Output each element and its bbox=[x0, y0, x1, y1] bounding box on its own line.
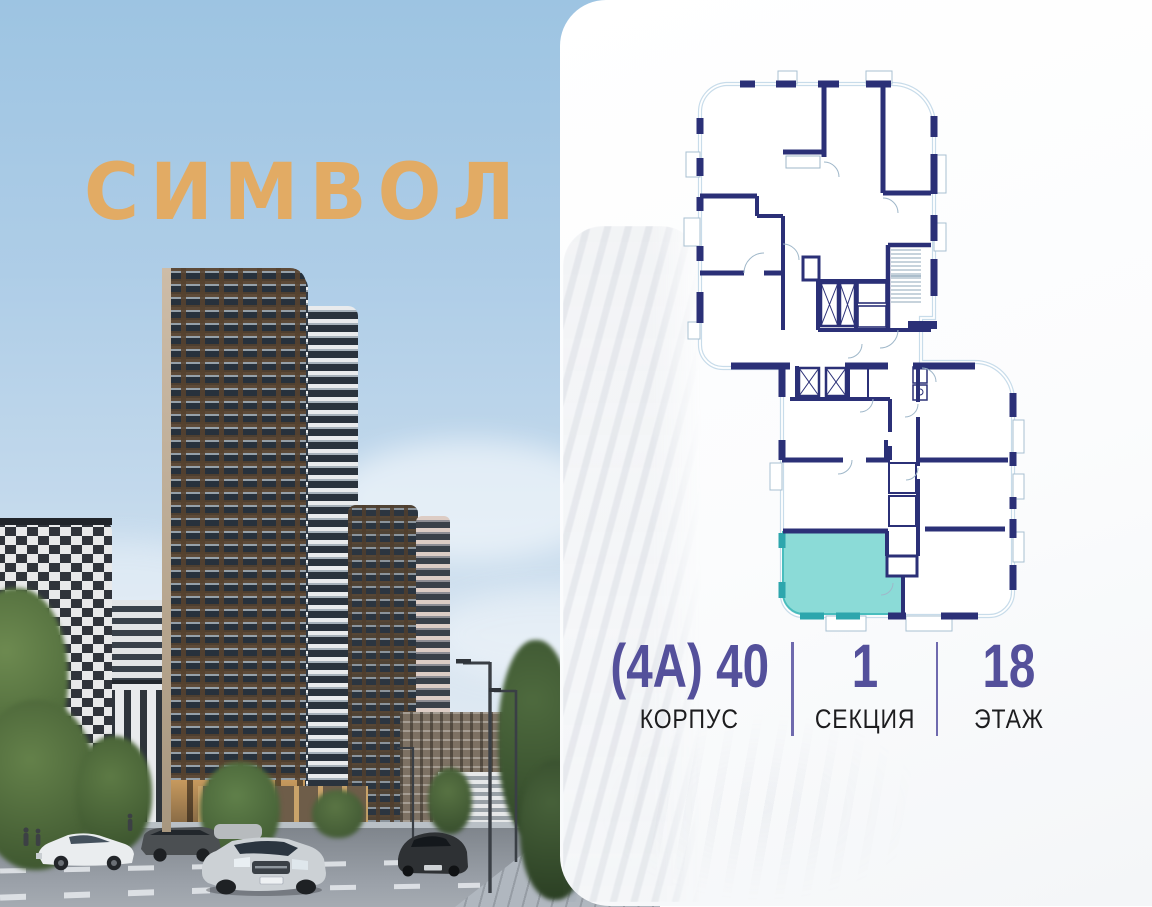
background-car bbox=[214, 824, 262, 839]
info-col-floor: 18 ЭТАЖ bbox=[938, 636, 1080, 748]
floor-label: ЭТАЖ bbox=[974, 704, 1044, 735]
project-logo: СИМВОЛ bbox=[84, 146, 564, 238]
section-value: 1 bbox=[852, 636, 878, 697]
divider bbox=[936, 642, 939, 736]
section-label: СЕКЦИЯ bbox=[815, 704, 915, 735]
info-col-building: (4А) 40 КОРПУС bbox=[588, 636, 791, 748]
divider bbox=[791, 642, 794, 736]
info-col-section: 1 СЕКЦИЯ bbox=[794, 636, 936, 748]
dark-sedan-car bbox=[398, 832, 468, 876]
floor-value: 18 bbox=[983, 636, 1036, 697]
building-label: КОРПУС bbox=[640, 704, 739, 735]
silver-mercedes-car bbox=[202, 837, 326, 896]
building-value: (4А) 40 bbox=[610, 636, 769, 697]
white-sedan-car bbox=[36, 833, 134, 870]
floor-plan bbox=[560, 0, 1152, 907]
unit-info-row: (4А) 40 КОРПУС 1 СЕКЦИЯ 18 ЭТАЖ bbox=[588, 636, 1080, 748]
